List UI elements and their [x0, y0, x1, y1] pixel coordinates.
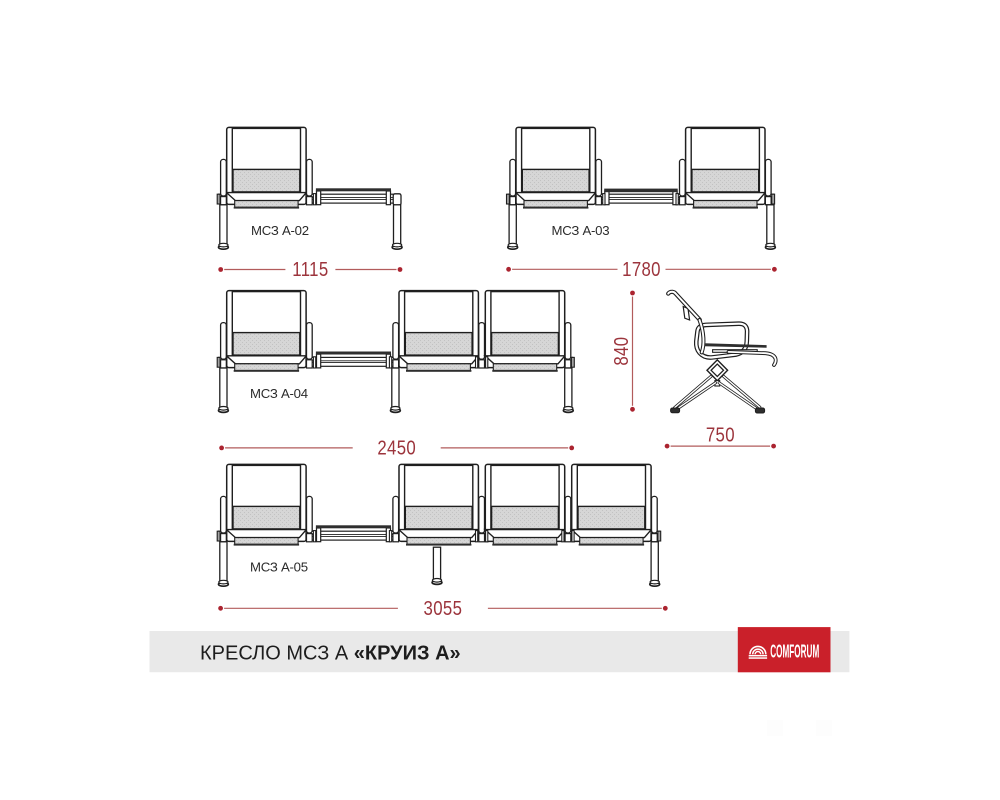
svg-text:1115: 1115 [292, 258, 328, 281]
svg-text:МСЗ А-02: МСЗ А-02 [251, 223, 309, 238]
svg-text:КРЕСЛО МСЗ А «КРУИЗ А»: КРЕСЛО МСЗ А «КРУИЗ А» [200, 642, 461, 664]
svg-text:МСЗ А-03: МСЗ А-03 [552, 223, 610, 238]
svg-text:COMFORUM: COMFORUM [770, 642, 819, 663]
svg-text:1780: 1780 [622, 257, 661, 280]
svg-text:840: 840 [610, 337, 633, 366]
svg-text:МСЗ А-04: МСЗ А-04 [250, 386, 308, 401]
svg-text:750: 750 [706, 423, 735, 446]
svg-text:3055: 3055 [424, 596, 463, 619]
svg-text:МСЗ А-05: МСЗ А-05 [250, 559, 308, 574]
svg-text:2450: 2450 [377, 436, 416, 459]
